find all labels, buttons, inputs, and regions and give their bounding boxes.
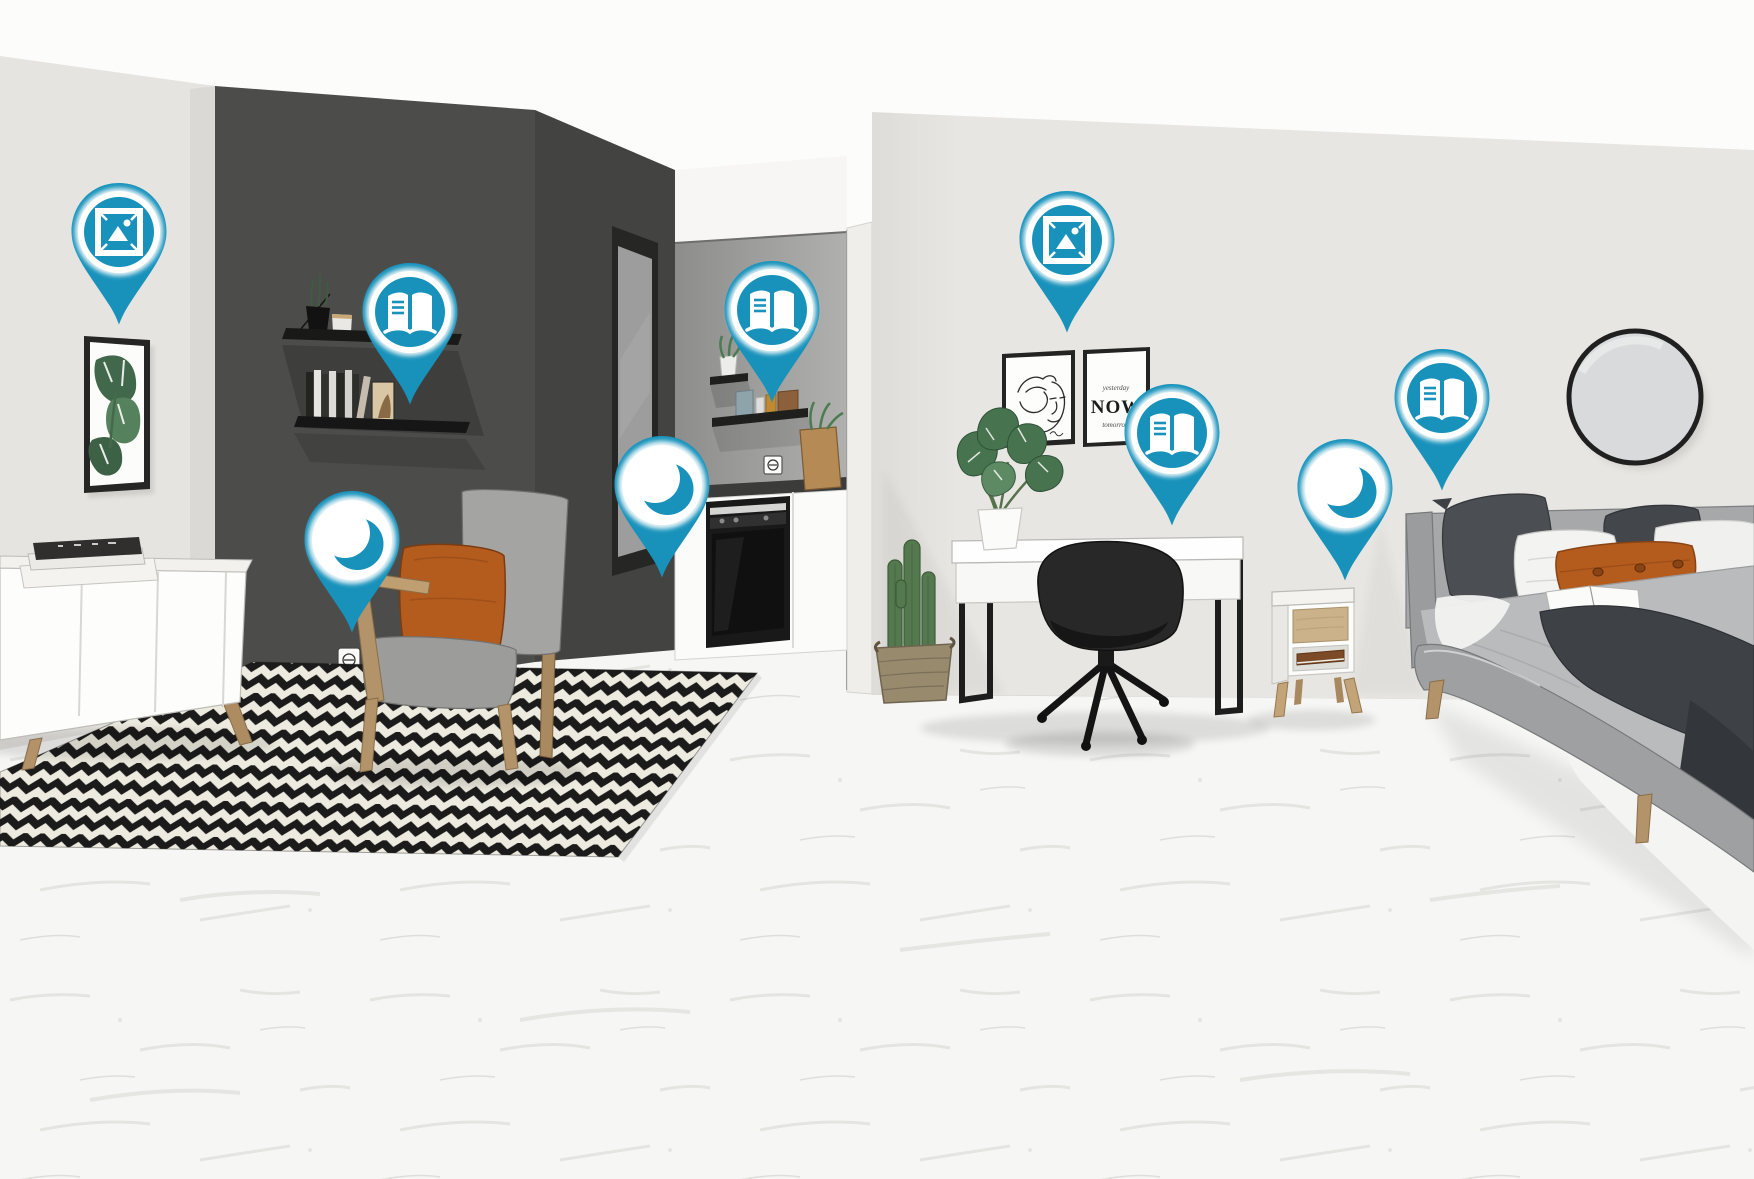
sideboard [0,537,275,770]
pin-armchair-corner[interactable] [300,488,404,638]
book-stack [20,537,158,588]
pin-wall-art-left[interactable] [67,180,171,330]
pin-nightstand[interactable] [1293,436,1397,586]
round-mirror [1569,331,1707,469]
kitchen-outlet [764,456,782,474]
kitchen-oven [706,496,790,648]
wall-jamb [847,222,872,694]
pin-wall-art-right[interactable] [1015,188,1119,338]
room-scene: yesterday NOW tomorrow [0,0,1754,1179]
pin-bookshelf-dark-wall[interactable] [358,260,462,410]
scene-svg: yesterday NOW tomorrow [0,0,1754,1179]
pin-kitchen-shelf[interactable] [720,258,824,408]
pin-bed[interactable] [1390,346,1494,496]
framed-plant-art [84,336,154,498]
kitchen [675,156,847,690]
pin-kitchen[interactable] [610,433,714,583]
pin-desk[interactable] [1120,381,1224,531]
